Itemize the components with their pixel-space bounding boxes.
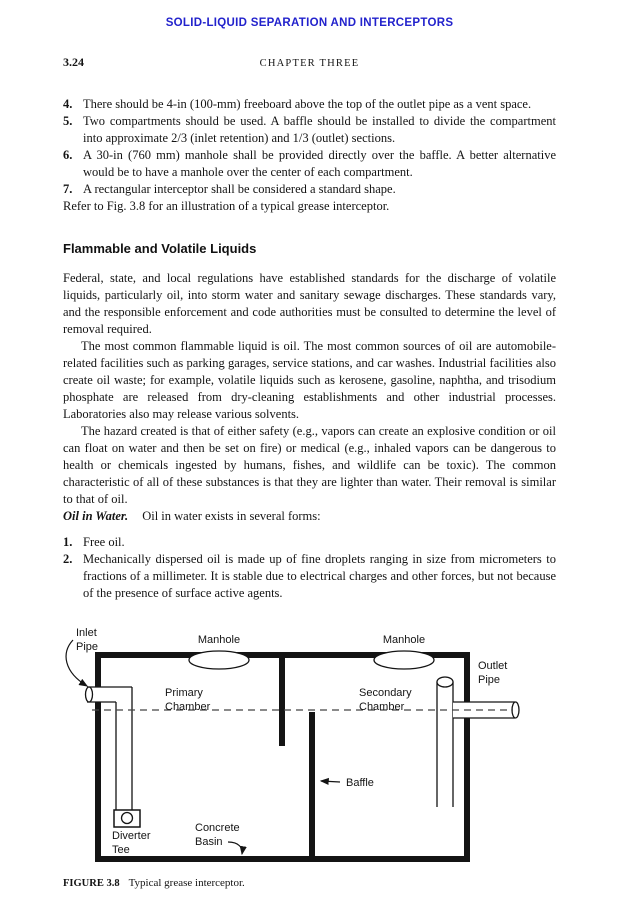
paragraph: The hazard created is that of either saf… (63, 423, 556, 508)
list-item-text: A 30-in (760 mm) manhole shall be provid… (83, 147, 556, 181)
outlet-pipe-assembly (437, 677, 519, 807)
list-item: 5. Two compartments should be used. A ba… (63, 113, 556, 147)
list-item: 6. A 30-in (760 mm) manhole shall be pro… (63, 147, 556, 181)
grease-interceptor-diagram: Inlet Pipe Manhole Manhole Primary Chamb… (60, 624, 557, 870)
page-header-row: 3.24 CHAPTER THREE (63, 54, 556, 71)
refer-note: Refer to Fig. 3.8 for an illustration of… (63, 198, 556, 215)
secondary-chamber-label-line2: Chamber (359, 701, 405, 713)
list-item-number: 1. (63, 534, 83, 551)
manhole-right-label: Manhole (383, 634, 425, 646)
figure-caption-label: FIGURE 3.8 (63, 878, 120, 889)
list-item: 7. A rectangular interceptor shall be co… (63, 181, 556, 198)
baffle-arrow (321, 781, 340, 782)
list-item-number: 4. (63, 96, 83, 113)
list-item-number: 2. (63, 551, 83, 602)
list-item-number: 6. (63, 147, 83, 181)
inlet-pipe-label-line2: Pipe (76, 641, 98, 653)
primary-chamber-label-line2: Chamber (165, 701, 211, 713)
concrete-basin-label-line2: Basin (195, 836, 223, 848)
oil-in-water-heading: Oil in Water. (63, 509, 128, 523)
book-page: SOLID-LIQUID SEPARATION AND INTERCEPTORS… (0, 0, 618, 900)
outlet-pipe-label-line1: Outlet (478, 660, 507, 672)
chapter-header: CHAPTER THREE (63, 55, 556, 72)
list-item: 1. Free oil. (63, 534, 556, 551)
paragraph: The most common flammable liquid is oil.… (63, 338, 556, 423)
inlet-pipe-label-line1: Inlet (76, 627, 97, 639)
requirements-list: 4. There should be 4-in (100-mm) freeboa… (63, 96, 556, 198)
list-item-number: 5. (63, 113, 83, 147)
oil-in-water-line: Oil in Water.Oil in water exists in seve… (63, 508, 556, 525)
list-item-text: Mechanically dispersed oil is made up of… (83, 551, 556, 602)
manhole-right-opening (374, 651, 434, 669)
section-heading: Flammable and Volatile Liquids (63, 240, 556, 257)
figure-3-8: Inlet Pipe Manhole Manhole Primary Chamb… (60, 624, 556, 870)
figure-caption: FIGURE 3.8Typical grease interceptor. (63, 875, 556, 892)
manhole-left-opening (189, 651, 249, 669)
paragraph: Federal, state, and local regulations ha… (63, 270, 556, 338)
inlet-pipe-assembly (86, 687, 141, 827)
diverter-tee-label-line1: Diverter (112, 830, 151, 842)
list-item: 2. Mechanically dispersed oil is made up… (63, 551, 556, 602)
oil-in-water-intro: Oil in water exists in several forms: (142, 509, 320, 523)
oil-forms-list: 1. Free oil. 2. Mechanically dispersed o… (63, 534, 556, 602)
list-item-text: There should be 4-in (100-mm) freeboard … (83, 96, 556, 113)
list-item: 4. There should be 4-in (100-mm) freeboa… (63, 96, 556, 113)
figure-caption-text: Typical grease interceptor. (129, 877, 245, 889)
concrete-basin-label-line1: Concrete (195, 822, 240, 834)
list-item-text: Free oil. (83, 534, 556, 551)
secondary-chamber-label-line1: Secondary (359, 687, 412, 699)
running-header: SOLID-LIQUID SEPARATION AND INTERCEPTORS (63, 15, 556, 32)
outlet-pipe-label-line2: Pipe (478, 674, 500, 686)
manhole-left-label: Manhole (198, 634, 240, 646)
list-item-text: Two compartments should be used. A baffl… (83, 113, 556, 147)
baffle-label: Baffle (346, 777, 374, 789)
diverter-tee-label-line2: Tee (112, 844, 130, 856)
concrete-basin-arrow (228, 842, 242, 854)
list-item-number: 7. (63, 181, 83, 198)
primary-chamber-label-line1: Primary (165, 687, 203, 699)
list-item-text: A rectangular interceptor shall be consi… (83, 181, 556, 198)
